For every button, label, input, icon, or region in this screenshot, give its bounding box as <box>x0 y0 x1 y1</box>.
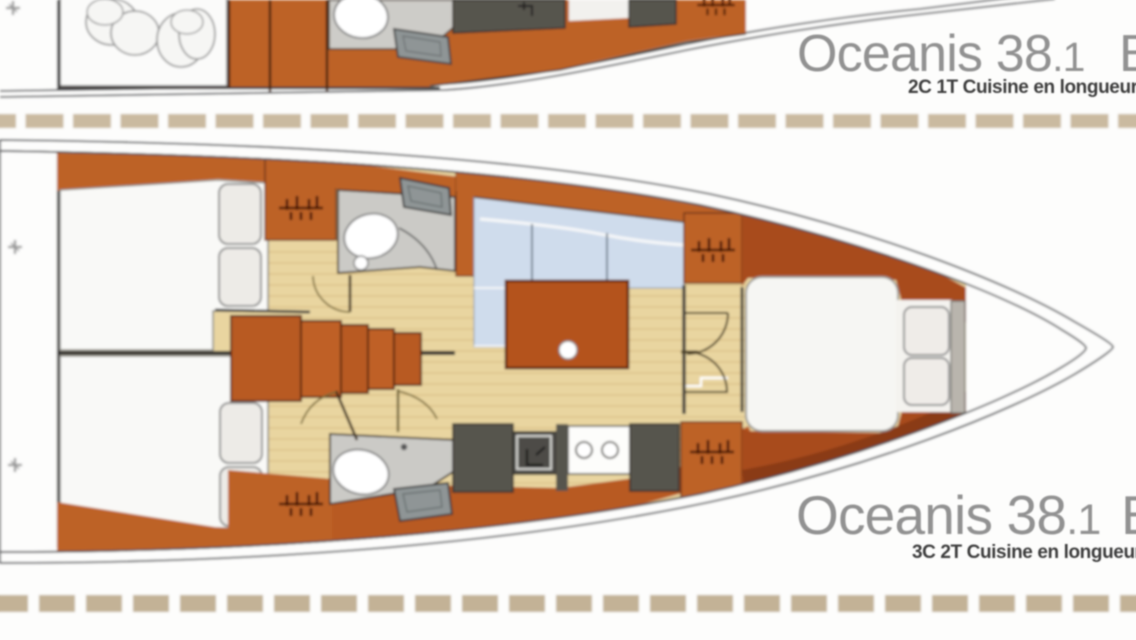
svg-text:2C 1T Cuisine en longueur: 2C 1T Cuisine en longueur <box>908 77 1136 98</box>
svg-text:3C 2T Cuisine en longueur: 3C 2T Cuisine en longueur <box>912 542 1136 563</box>
svg-text:B: B <box>1119 25 1136 83</box>
svg-text:Oceanis 38.1: Oceanis 38.1 <box>796 484 1101 546</box>
svg-text:Oceanis 38.1: Oceanis 38.1 <box>797 25 1085 83</box>
svg-text:B: B <box>1121 484 1136 546</box>
